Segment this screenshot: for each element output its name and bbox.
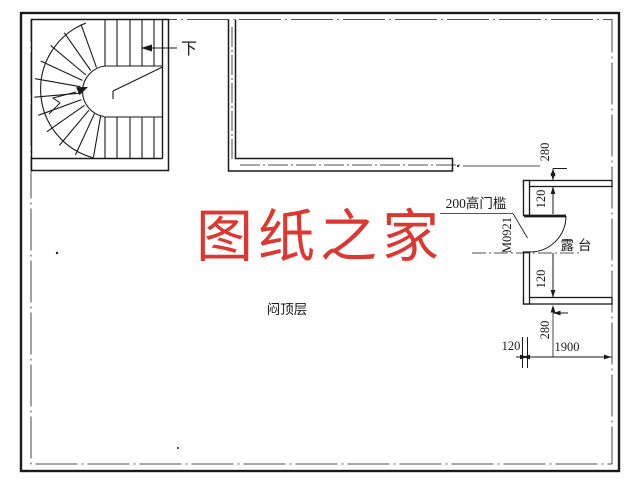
door-annotation: 200高门槛 M0921	[440, 195, 528, 253]
centerline-dot	[56, 252, 58, 254]
dim-text: 120	[534, 190, 548, 209]
dimension-terrace-wall-bottom-120: 120	[534, 253, 555, 298]
door-threshold-note: 200高门槛	[446, 195, 507, 211]
watermark-text: 图纸之家	[196, 204, 444, 270]
stair-enclosure-wall	[32, 20, 169, 171]
floor-label: 闷顶层	[267, 302, 308, 317]
door-tag: M0921	[500, 217, 514, 253]
dim-text: 1900	[555, 340, 580, 354]
dim-text: 280	[538, 321, 552, 340]
interior-wall	[229, 20, 541, 172]
dim-text: 120	[502, 339, 521, 353]
floor-plan-canvas: 下 露台 200高门槛 M0921 280	[0, 0, 640, 488]
terrace-left-wall-lower	[524, 252, 530, 304]
terrace-label: 露台	[561, 238, 596, 253]
dim-text: 280	[538, 143, 552, 162]
stair-down-label: 下	[181, 41, 197, 58]
dimension-bottom-row: 120 1900	[502, 337, 612, 368]
dim-text: 120	[534, 270, 548, 289]
floor-plan-drawing: 下 露台 200高门槛 M0921 280	[0, 0, 640, 488]
terrace-left-wall-upper	[524, 181, 530, 216]
centerline-dot	[177, 447, 179, 449]
dimension-terrace-wall-top-120: 120	[534, 187, 555, 215]
staircase: 下	[32, 20, 198, 171]
terrace-top-wall	[524, 181, 613, 187]
dimension-right-top-280: 280	[538, 143, 567, 181]
terrace-bottom-wall	[524, 298, 613, 305]
